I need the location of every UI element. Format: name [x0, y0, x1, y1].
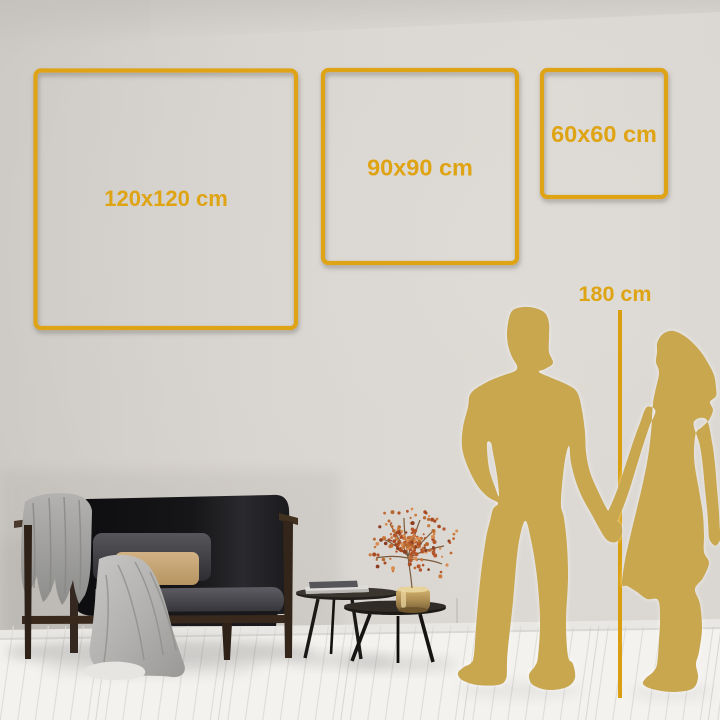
svg-text:60x60 cm: 60x60 cm	[551, 121, 657, 147]
svg-text:90x90 cm: 90x90 cm	[367, 155, 473, 181]
svg-text:180 cm: 180 cm	[579, 282, 652, 306]
svg-text:120x120 cm: 120x120 cm	[104, 186, 228, 211]
